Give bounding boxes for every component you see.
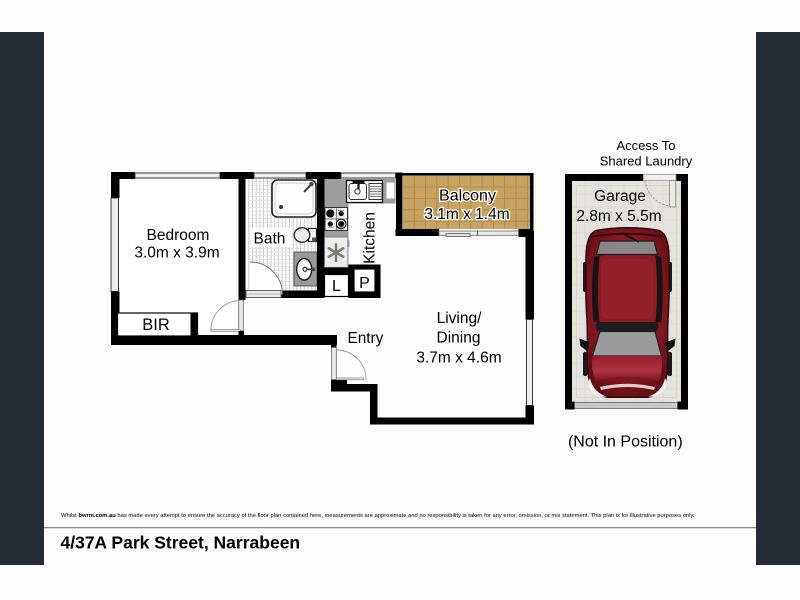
svg-text:Kitchen: Kitchen [362, 212, 379, 264]
svg-text:Access To: Access To [616, 138, 675, 153]
svg-text:4/37A Park Street, Narrabeen: 4/37A Park Street, Narrabeen [61, 533, 301, 553]
svg-text:Garage: Garage [594, 188, 646, 205]
svg-text:Bedroom: Bedroom [147, 227, 210, 244]
svg-text:(Not In Position): (Not In Position) [568, 434, 683, 451]
svg-text:Entry: Entry [347, 330, 383, 347]
svg-text:Bath: Bath [254, 231, 286, 248]
svg-text:Shared Laundry: Shared Laundry [600, 153, 693, 168]
svg-text:3.0m x 3.9m: 3.0m x 3.9m [134, 244, 219, 261]
svg-text:Balcony: Balcony [439, 187, 496, 204]
svg-text:Dining: Dining [437, 329, 481, 346]
svg-text:2.8m x 5.5m: 2.8m x 5.5m [576, 208, 661, 225]
svg-text:BIR: BIR [142, 316, 170, 334]
svg-text:Whilst bwrm.com.au has made ev: Whilst bwrm.com.au has made every attemp… [61, 513, 695, 519]
svg-text:3.7m x 4.6m: 3.7m x 4.6m [416, 350, 501, 367]
svg-text:P: P [359, 275, 370, 292]
svg-text:L: L [332, 278, 341, 295]
svg-text:Living/: Living/ [437, 310, 482, 327]
svg-text:3.1m x 1.4m: 3.1m x 1.4m [424, 206, 509, 223]
